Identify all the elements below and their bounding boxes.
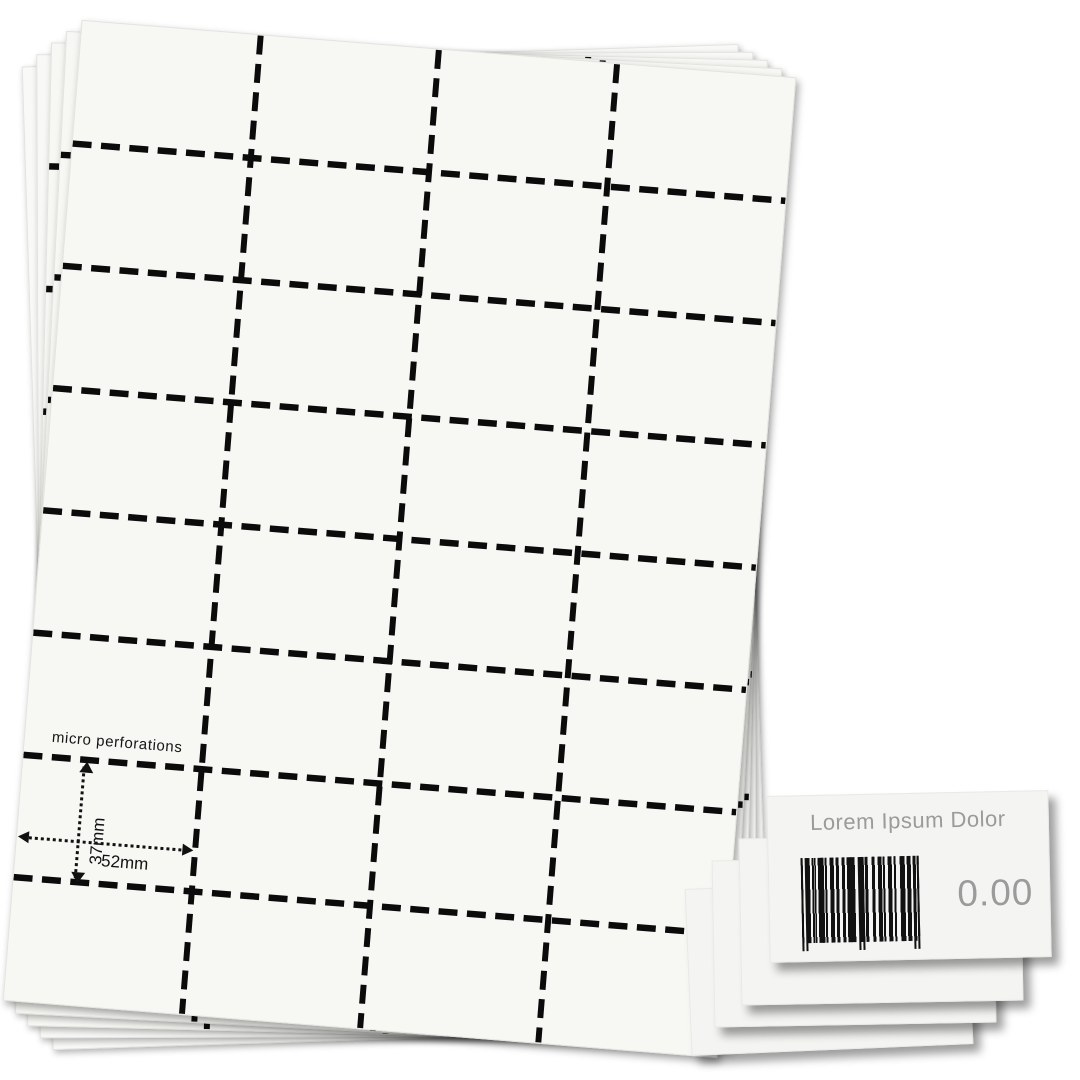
paper-sheet-front: micro perforations 37mm 52mm [3, 20, 797, 1058]
perforation-grid [4, 21, 795, 1057]
tag-title: Lorem Ipsum Dolor [768, 805, 1048, 837]
barcode-icon [801, 856, 921, 943]
price-tag-card-front: Lorem Ipsum Dolor 0.00 [766, 790, 1051, 963]
tag-price: 0.00 [947, 871, 1044, 915]
cell-width-label: 52mm [100, 851, 149, 875]
barcode-guard [858, 857, 862, 950]
product-photo: micro perforations 37mm 52mm Lorem Ipsum… [0, 0, 1080, 1080]
